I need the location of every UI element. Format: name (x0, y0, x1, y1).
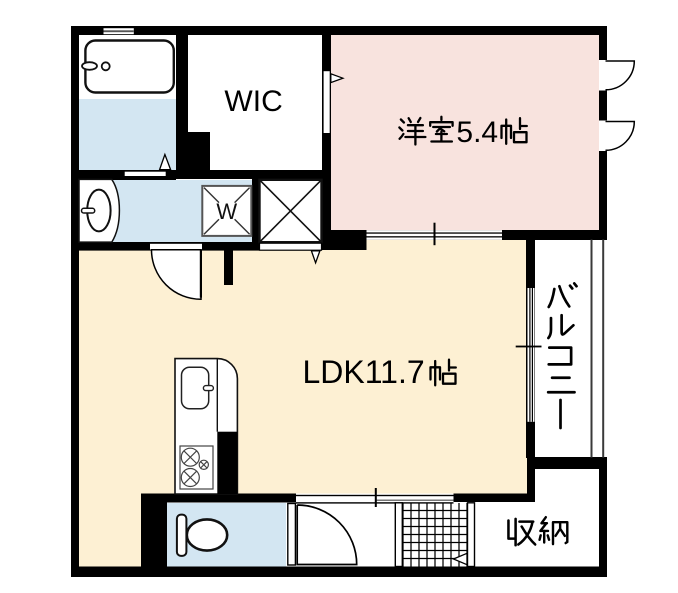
svg-text:LDK11.7: LDK11.7 (303, 354, 425, 390)
svg-text:5.4: 5.4 (456, 116, 498, 149)
svg-text:WIC: WIC (224, 85, 282, 118)
svg-text:W: W (216, 199, 237, 224)
